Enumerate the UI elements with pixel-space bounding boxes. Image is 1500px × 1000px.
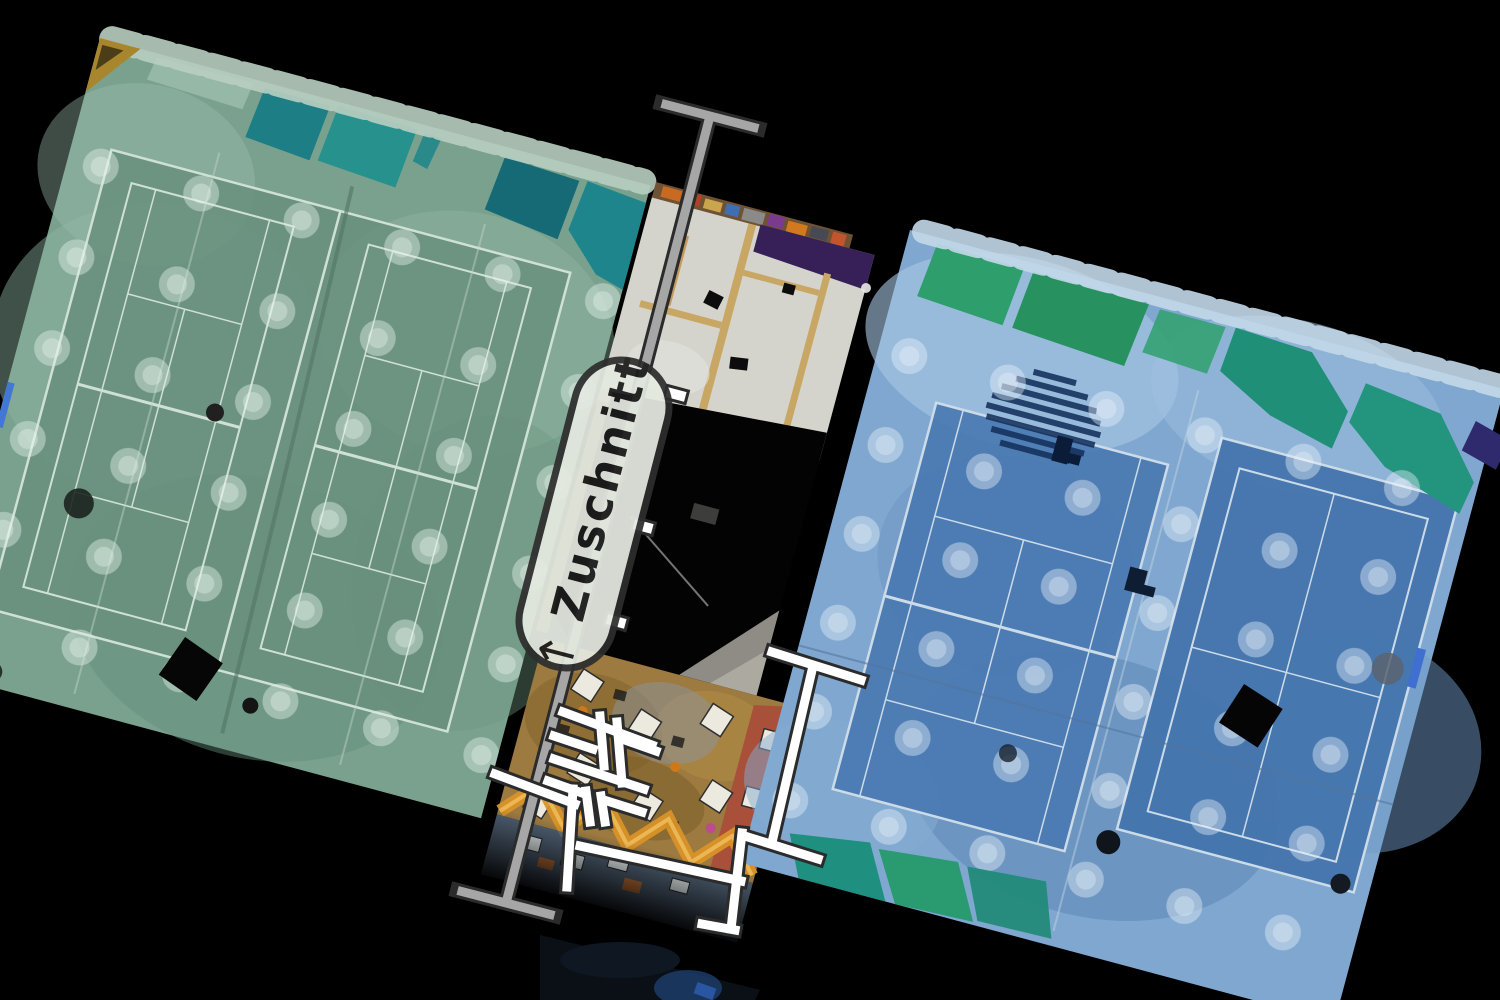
crop-annotation-overlay	[0, 0, 1500, 1000]
plan-line	[580, 846, 741, 881]
plan-line	[586, 791, 590, 822]
orthophoto-figure: ↑ Zuschnitt	[0, 0, 1500, 1000]
plan-line	[773, 666, 813, 838]
plan-line	[702, 924, 735, 930]
plan-line	[617, 722, 622, 783]
plan-line	[601, 796, 605, 822]
plan-line	[554, 736, 593, 749]
plan-line	[600, 716, 604, 766]
plan-line	[567, 789, 573, 887]
plan-line	[731, 833, 742, 929]
